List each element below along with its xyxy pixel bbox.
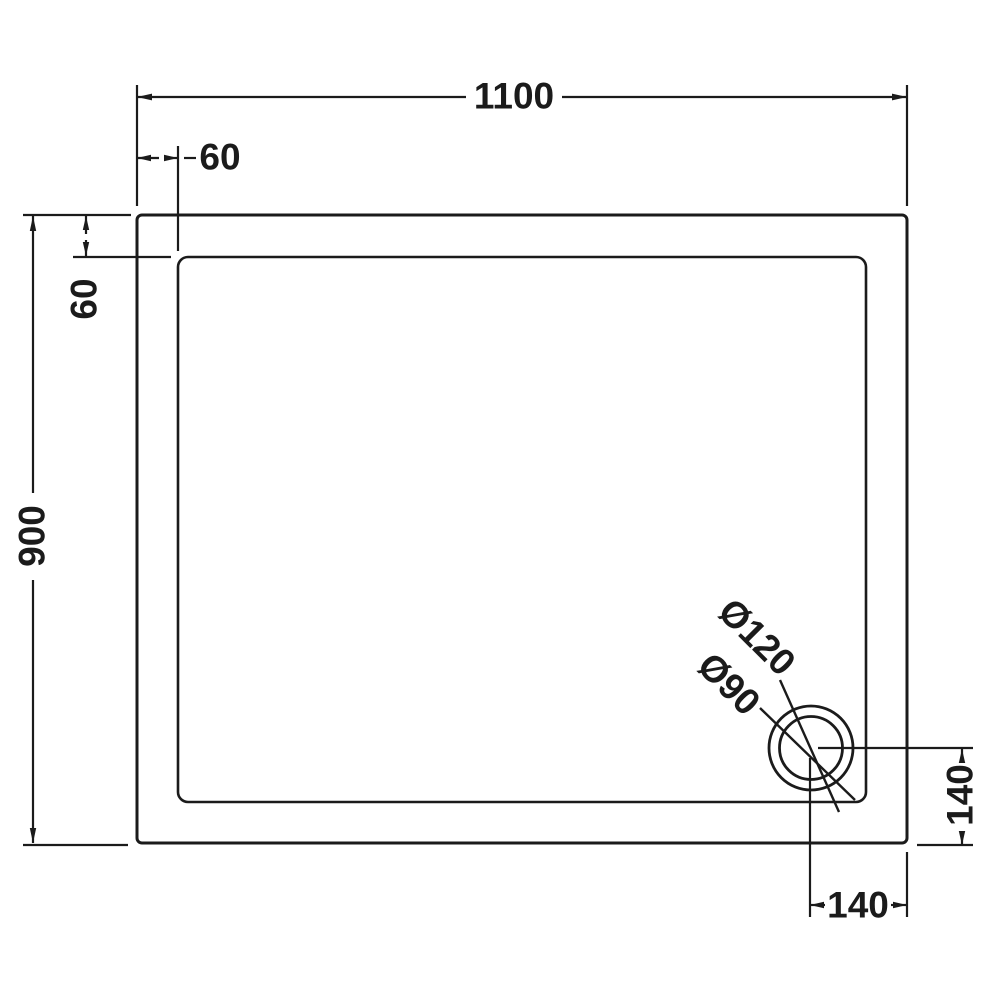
arrowhead-width-right bbox=[892, 94, 907, 101]
arrowhead-height-up bbox=[30, 216, 36, 231]
dimension-overall-height: 900 bbox=[12, 216, 53, 843]
dimension-drain-offset-right: 140 bbox=[940, 749, 981, 845]
dim-rim-top-label: 60 bbox=[199, 137, 240, 178]
drawing-canvas: 1100 60 60 900 bbox=[0, 0, 1000, 1000]
arrowhead-rim-top-right bbox=[164, 155, 178, 161]
dim-rim-left-label: 60 bbox=[64, 278, 105, 319]
dimension-drain-offset-bottom: 140 bbox=[810, 885, 907, 926]
tray-inner-basin-rect bbox=[178, 257, 866, 802]
arrowhead-rim-left-down bbox=[83, 242, 89, 256]
tray-outer-edge-rect bbox=[137, 215, 907, 843]
dimension-rim-left: 60 bbox=[64, 216, 105, 320]
arrowhead-rim-left-up bbox=[83, 216, 89, 230]
dim-drain-offset-bottom-label: 140 bbox=[827, 885, 889, 926]
dimension-rim-top: 60 bbox=[137, 137, 241, 178]
dim-overall-width-label: 1100 bbox=[474, 76, 554, 117]
arrowhead-rim-top-left bbox=[137, 155, 151, 161]
arrowhead-width-left bbox=[137, 94, 152, 101]
arrowhead-offset-right-down bbox=[959, 831, 965, 845]
arrowhead-offset-bottom-left bbox=[810, 902, 824, 908]
arrowhead-height-down bbox=[30, 828, 36, 843]
dim-overall-height-label: 900 bbox=[12, 505, 53, 567]
shower-tray-technical-drawing: 1100 60 60 900 bbox=[0, 0, 1000, 1000]
arrowhead-offset-bottom-right bbox=[893, 902, 907, 908]
arrowhead-offset-right-up bbox=[959, 749, 965, 763]
dim-drain-offset-right-label: 140 bbox=[940, 764, 981, 826]
drain-diameter-callouts: Ø120 Ø90 bbox=[690, 591, 855, 812]
dimension-overall-width: 1100 bbox=[137, 76, 907, 117]
